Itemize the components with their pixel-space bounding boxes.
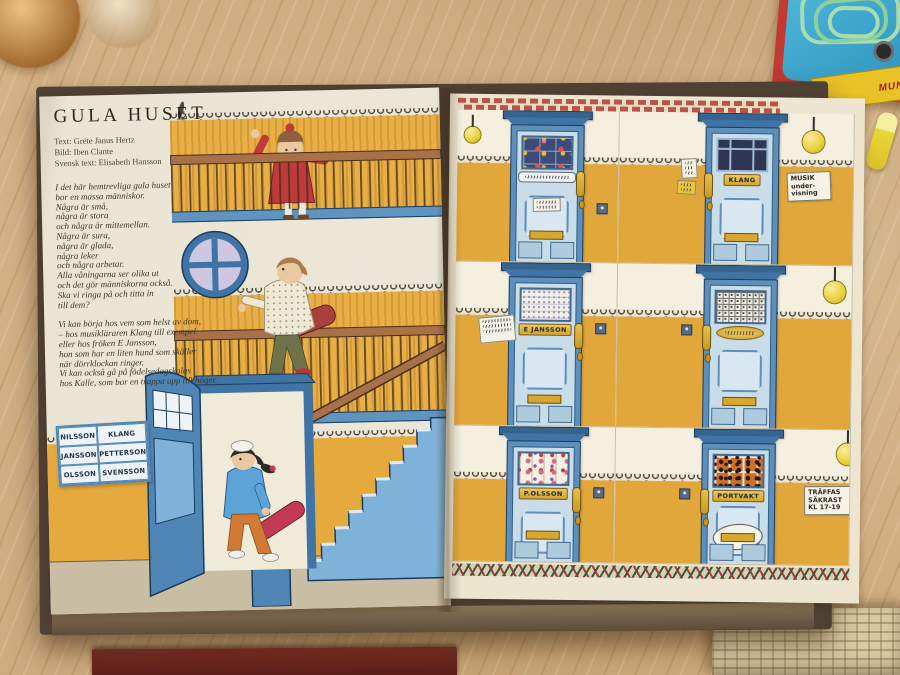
resident-name-board: NILSSON KLANG JANSSON PETTERSON OLSSON S… (56, 421, 151, 487)
green-coiled-cable (827, 6, 880, 39)
door-middle-right (694, 265, 786, 429)
handwritten-door-note (533, 197, 561, 212)
door-handle (704, 173, 713, 199)
nameplate-engraved-cursive (716, 326, 764, 341)
door-cell-middle-left: E JANSSON (454, 262, 618, 428)
nameplate-klang: KLANG (724, 174, 761, 186)
door-frame: P.OLSSON (505, 440, 580, 562)
visiting-hours-note: TRÄFFASSÄKRASTKL 17-19 (804, 486, 851, 515)
door-cell-top-right: KLANG MUSIKunder-visning (618, 112, 855, 267)
door-handle (700, 489, 709, 515)
doorbell (681, 324, 692, 335)
name-board-cell: SVENSSON (99, 461, 149, 483)
small-posted-note (681, 158, 698, 179)
ceiling-lamp (823, 280, 847, 304)
door-handle (702, 325, 711, 351)
door-cell-top-left (456, 110, 620, 264)
nameplate-e-jansson: E JANSSON (519, 323, 572, 336)
door-cell-bottom-left: P.OLSSON (452, 426, 616, 564)
text-line: till dem? (58, 297, 223, 311)
mail-slot (529, 230, 563, 239)
text-line: KL 17-19 (808, 504, 851, 512)
name-board-cell: JANSSON (59, 445, 99, 466)
poem-stanza-1: I det här hemtrevliga gula husetbor en m… (55, 180, 223, 311)
door-frame: PORTVAKT Svensson (700, 443, 775, 565)
right-page-door-grid: KLANG MUSIKunder-visning (444, 93, 865, 603)
doorbell (597, 203, 608, 214)
handwritten-wall-note (478, 314, 516, 343)
door-window-lattice (714, 290, 766, 325)
door-bottom-panels (712, 544, 762, 562)
mail-slot (724, 233, 758, 242)
door-klang: KLANG (696, 113, 788, 265)
clear-glass-object (86, 0, 160, 48)
doorbell (679, 488, 690, 499)
door-bottom-panels (519, 405, 569, 423)
text-line: Svensk text: Elisabeth Hansson (55, 155, 220, 170)
text-line: visning (791, 189, 827, 198)
door-cell-middle-right (616, 264, 853, 431)
photo-of-open-picture-book: MOBI MUNICATIO (0, 0, 900, 675)
door-e-jansson: E JANSSON (499, 262, 591, 426)
yellow-highlighter-pen (864, 110, 899, 171)
poem-stanza-2: Vi kan börja hos vem som helst av dom,– … (58, 317, 225, 389)
mail-slot (722, 397, 756, 406)
door-leaf (515, 130, 579, 262)
door-handle (576, 171, 585, 197)
left-page: GULA HUSET Text: Grete Janus HertzBild: … (39, 88, 451, 615)
name-board-cell: OLSSON (60, 464, 100, 485)
mail-slot (526, 530, 560, 539)
door-leaf: KLANG (710, 133, 774, 265)
door-handle (572, 487, 581, 513)
door-bottom-panels (517, 541, 567, 559)
door-bottom-panels (716, 244, 766, 262)
door-leaf (708, 285, 772, 429)
door-panel (717, 350, 762, 393)
amber-glass-object (0, 0, 80, 68)
door-leaf: P.OLSSON (511, 446, 574, 562)
red-book-edge (92, 647, 457, 675)
door-cell-bottom-right: PORTVAKT Svensson TRÄFFASSÄKRASTKL 17-19 (614, 428, 851, 567)
mail-slot (721, 533, 755, 542)
door-window-floral-stained-glass (517, 451, 569, 486)
door-frame: KLANG (704, 127, 780, 265)
floor-zigzag-border (452, 564, 849, 581)
book-gutter-shadow (436, 88, 462, 612)
page-title: GULA HUSET (53, 103, 218, 129)
name-board-cell: NILSSON (58, 426, 98, 447)
door-window-lace-curtain (519, 287, 571, 322)
door-p-olsson: P.OLSSON (497, 426, 589, 562)
door-window-children-drawings (521, 135, 573, 170)
door-panel (522, 347, 567, 390)
door-bottom-panels (521, 241, 571, 259)
door-window-leopard-curtain (712, 454, 764, 489)
door-window-dark-panes (716, 138, 768, 173)
door-leaf: E JANSSON (513, 282, 577, 426)
door-handle (574, 323, 583, 349)
credits: Text: Grete Janus HertzBild: Iben Clante… (54, 133, 220, 170)
mail-slot (527, 394, 561, 403)
doorbell (595, 323, 606, 334)
door-cells: KLANG MUSIKunder-visning (452, 110, 854, 567)
door-portvakt-svensson: PORTVAKT Svensson (692, 428, 784, 564)
door-frame: E JANSSON (507, 276, 583, 426)
door-frame (509, 124, 585, 262)
left-page-text-block: GULA HUSET Text: Grete Janus HertzBild: … (53, 103, 224, 390)
ceiling-lamp (801, 130, 825, 154)
nameplate-cursive-illegible (518, 171, 576, 183)
door-leaf: PORTVAKT Svensson (706, 449, 769, 565)
door-bottom-panels (714, 408, 764, 426)
music-lessons-note: MUSIKunder-visning (786, 171, 831, 201)
small-yellow-note (677, 180, 697, 195)
doorbell (593, 487, 604, 498)
door-frame (702, 279, 778, 429)
ceiling-lamp (463, 126, 481, 144)
nameplate-p-olsson: P.OLSSON (519, 487, 568, 500)
door-top-left (501, 110, 593, 262)
sign-portvakt: PORTVAKT (712, 490, 764, 503)
